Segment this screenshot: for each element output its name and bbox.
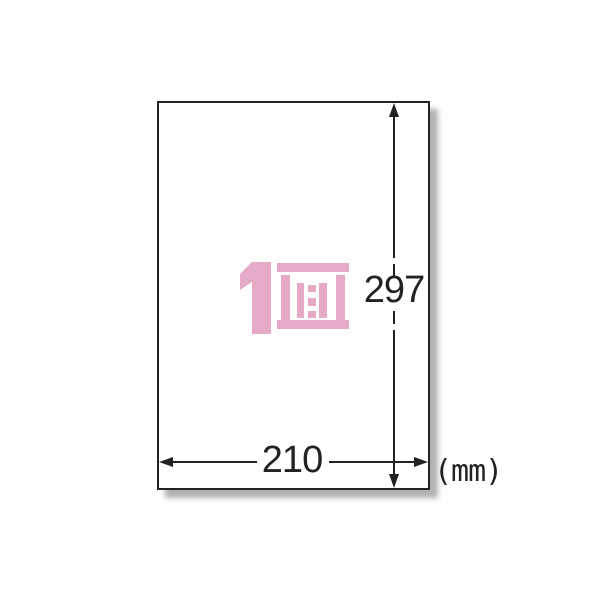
width-dimension-value: 210 [247, 441, 337, 479]
width-dim-line-right [329, 461, 415, 463]
height-dim-line-bottom [393, 330, 395, 476]
sheet-label-glyphs [236, 259, 354, 339]
glyph-men [277, 263, 349, 329]
sheet-label: 1面 [236, 259, 354, 339]
glyph-one [240, 262, 271, 334]
width-dim-arrow-right [414, 457, 428, 467]
height-dimension-value: 297 [349, 271, 439, 309]
unit-label: (mm) [434, 456, 502, 488]
height-dim-line-top [393, 112, 395, 258]
label-sheet-diagram: 1面 297 210 (mm) [0, 0, 600, 600]
height-dim-arrow-down [389, 474, 399, 488]
width-dim-line-left [171, 461, 257, 463]
height-dim-dash-below [393, 311, 395, 324]
